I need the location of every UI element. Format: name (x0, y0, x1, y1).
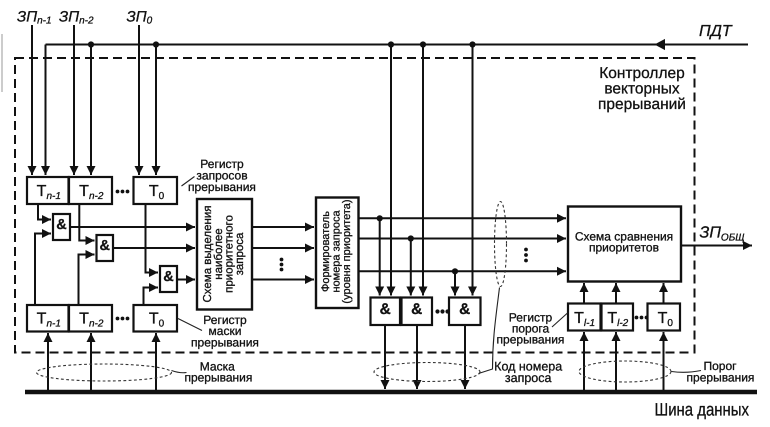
svg-text:&: & (56, 217, 67, 233)
svg-text:&: & (99, 238, 110, 254)
svg-text:ЗПn-2: ЗПn-2 (59, 9, 94, 27)
svg-text:прерывания: прерывания (687, 371, 755, 385)
svg-text:&: & (459, 301, 470, 318)
svg-text:Контроллер: Контроллер (599, 65, 685, 82)
svg-text:прерывания: прерывания (191, 335, 259, 349)
svg-text:ЗП0: ЗП0 (127, 9, 153, 27)
svg-text:приоритетов: приоритетов (589, 241, 659, 255)
svg-text:запроса: запроса (234, 232, 246, 275)
svg-text:прерывания: прерывания (188, 180, 256, 194)
svg-text:прерывания: прерывания (497, 333, 565, 347)
svg-text:&: & (380, 301, 391, 318)
svg-text:Шина данных: Шина данных (655, 400, 750, 420)
svg-text:&: & (411, 301, 422, 318)
svg-text:запроса: запроса (505, 371, 552, 385)
svg-text:ЗПОБЩ: ЗПОБЩ (700, 225, 745, 244)
svg-text:ЗПn-1: ЗПn-1 (17, 9, 52, 27)
svg-text:прерывания: прерывания (184, 371, 252, 385)
svg-text:(уровня приоритета): (уровня приоритета) (341, 199, 353, 303)
svg-text:векторных: векторных (604, 81, 680, 98)
svg-text:ПДТ: ПДТ (699, 23, 733, 40)
svg-text:&: & (163, 269, 174, 285)
svg-text:прерываний: прерываний (598, 96, 686, 113)
